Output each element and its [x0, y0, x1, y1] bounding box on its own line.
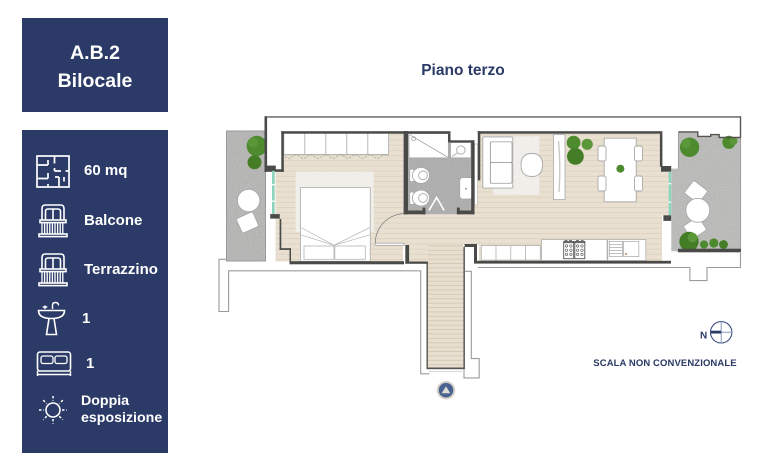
svg-text:SCALA NON CONVENZIONALE: SCALA NON CONVENZIONALE: [593, 358, 736, 369]
svg-text:N: N: [700, 331, 707, 342]
